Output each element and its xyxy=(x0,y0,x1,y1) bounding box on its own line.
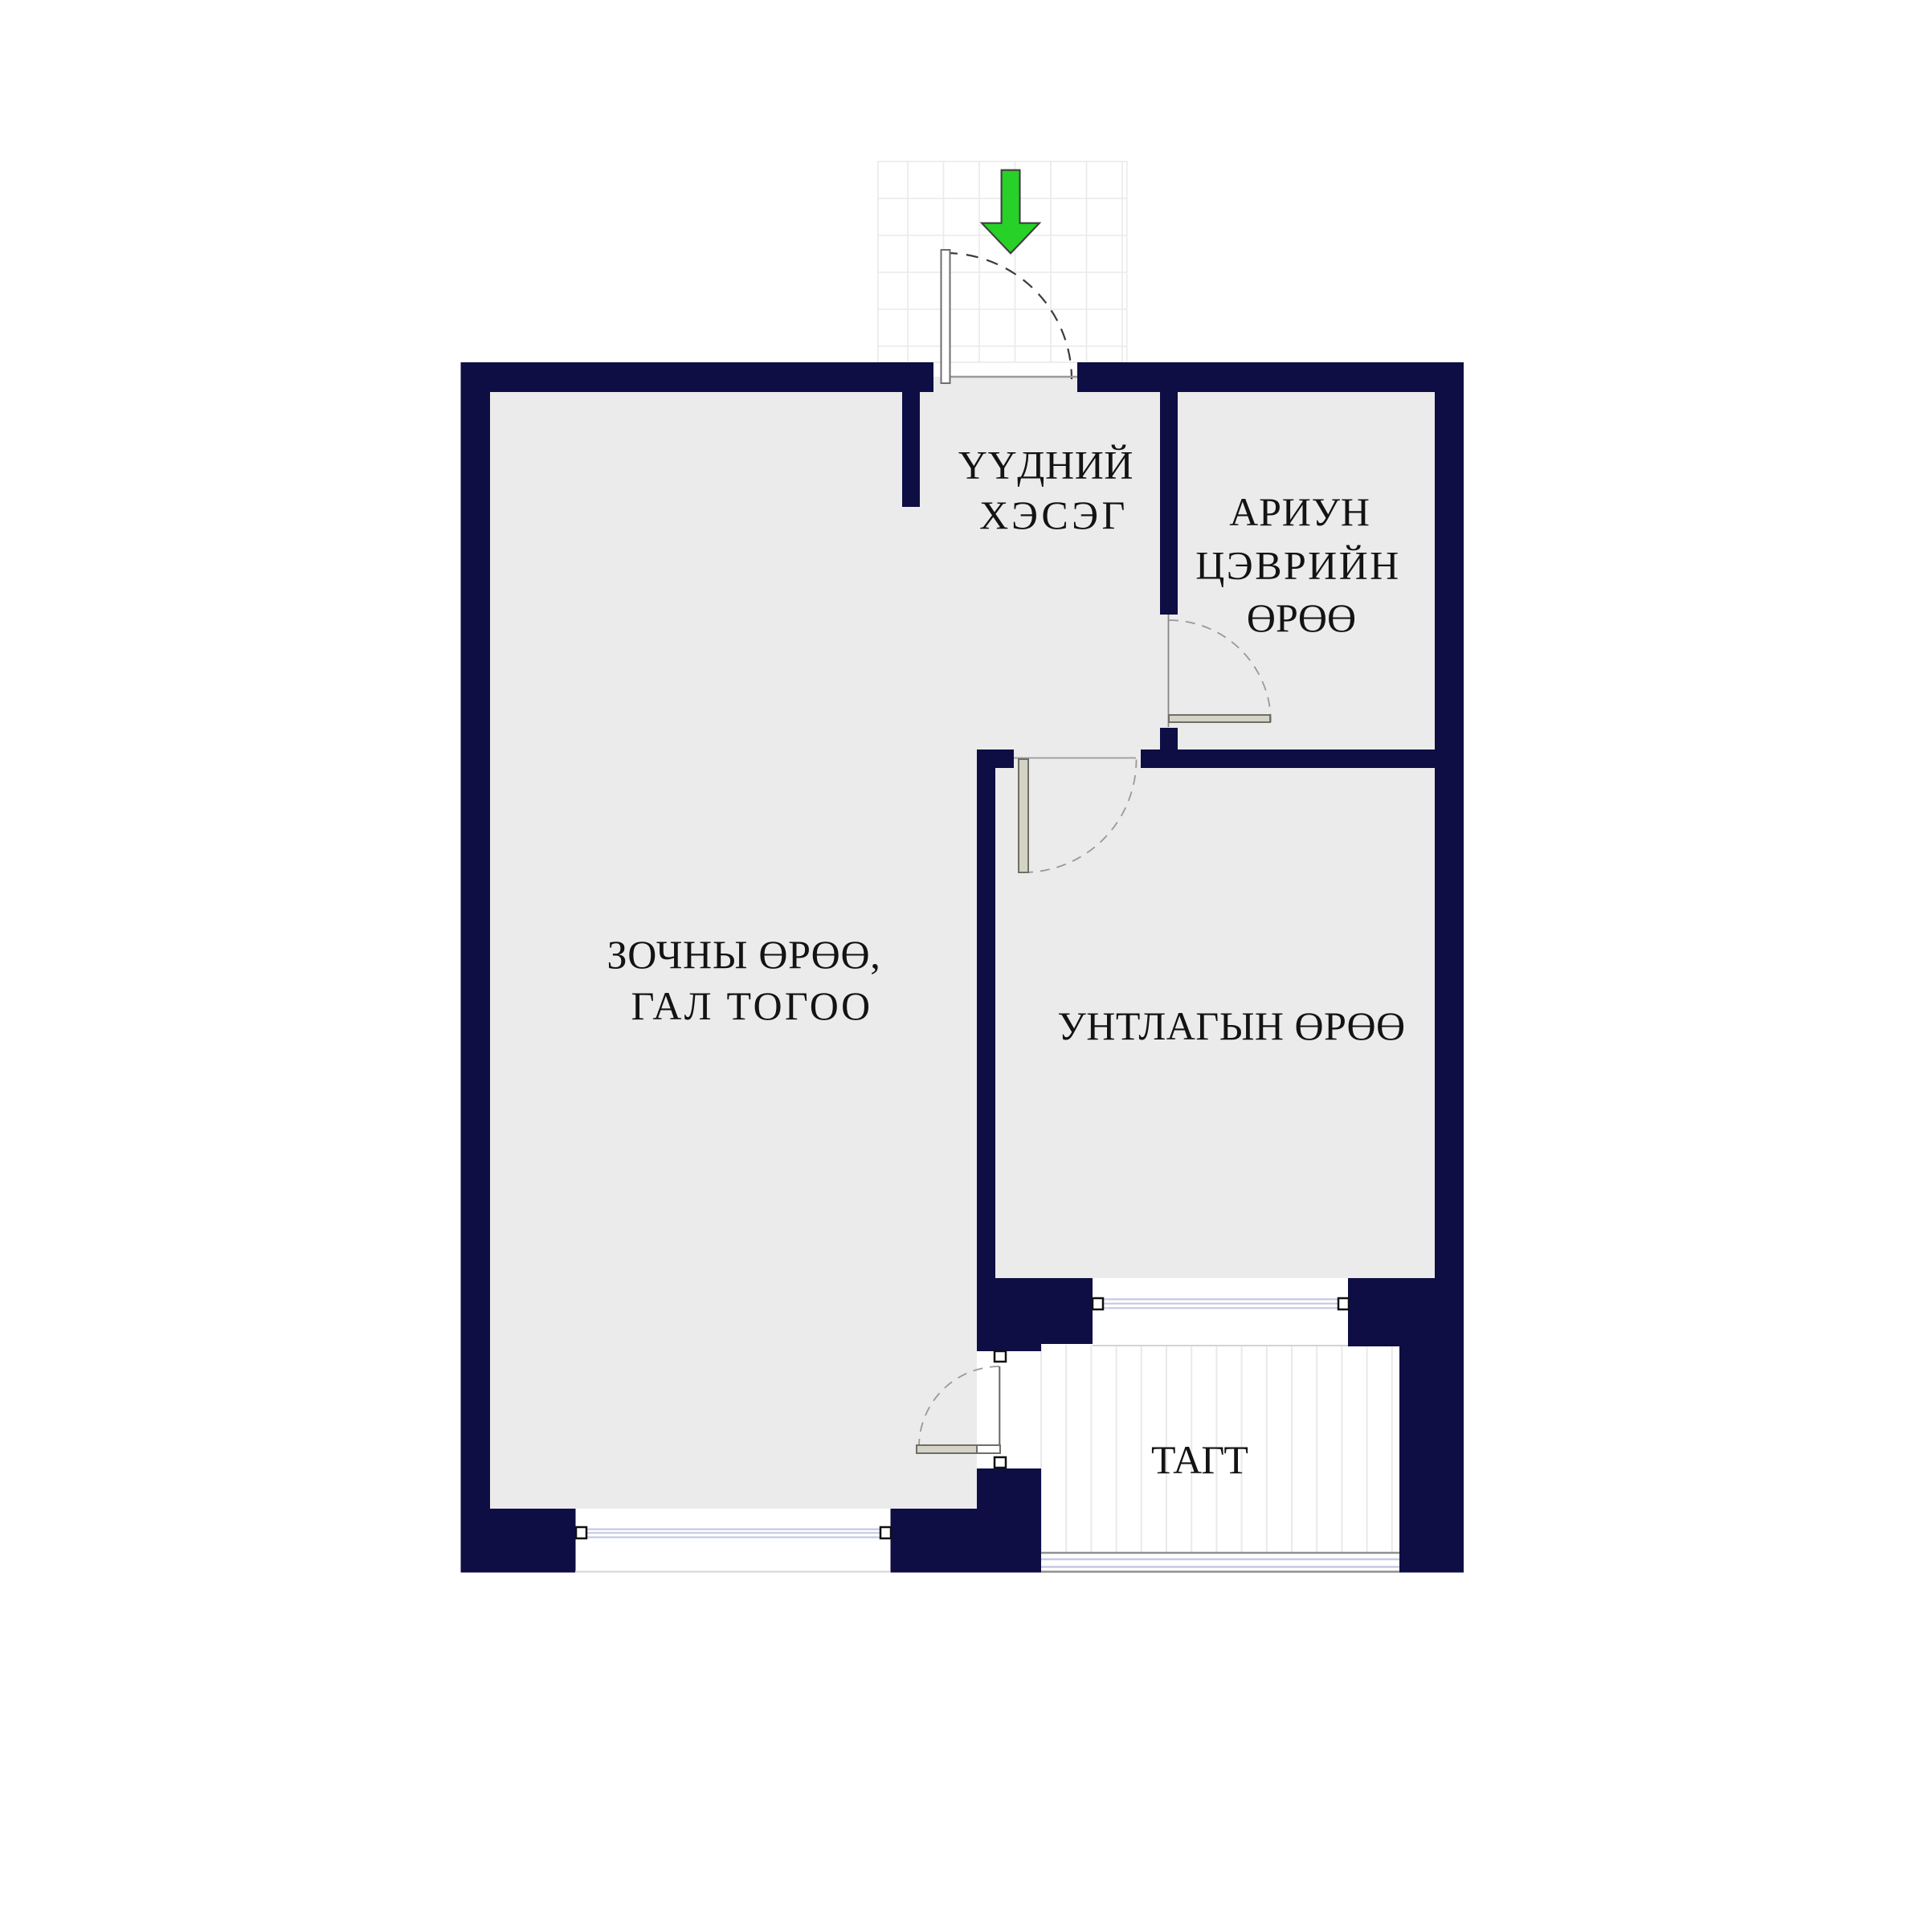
svg-text:АРИУН: АРИУН xyxy=(1229,489,1370,534)
svg-text:ЦЭВРИЙН: ЦЭВРИЙН xyxy=(1195,543,1400,588)
svg-text:УНТЛАГЫН ӨРӨӨ: УНТЛАГЫН ӨРӨӨ xyxy=(1057,1003,1405,1048)
svg-text:ӨРӨӨ: ӨРӨӨ xyxy=(1247,595,1356,640)
svg-text:ХЭСЭГ: ХЭСЭГ xyxy=(979,492,1129,537)
svg-text:ЗОЧНЫ ӨРӨӨ,: ЗОЧНЫ ӨРӨӨ, xyxy=(607,932,881,977)
svg-text:ҮҮДНИЙ: ҮҮДНИЙ xyxy=(958,443,1134,488)
svg-text:ТАГТ: ТАГТ xyxy=(1151,1437,1248,1482)
svg-text:ГАЛ ТОГОО: ГАЛ ТОГОО xyxy=(631,983,873,1028)
